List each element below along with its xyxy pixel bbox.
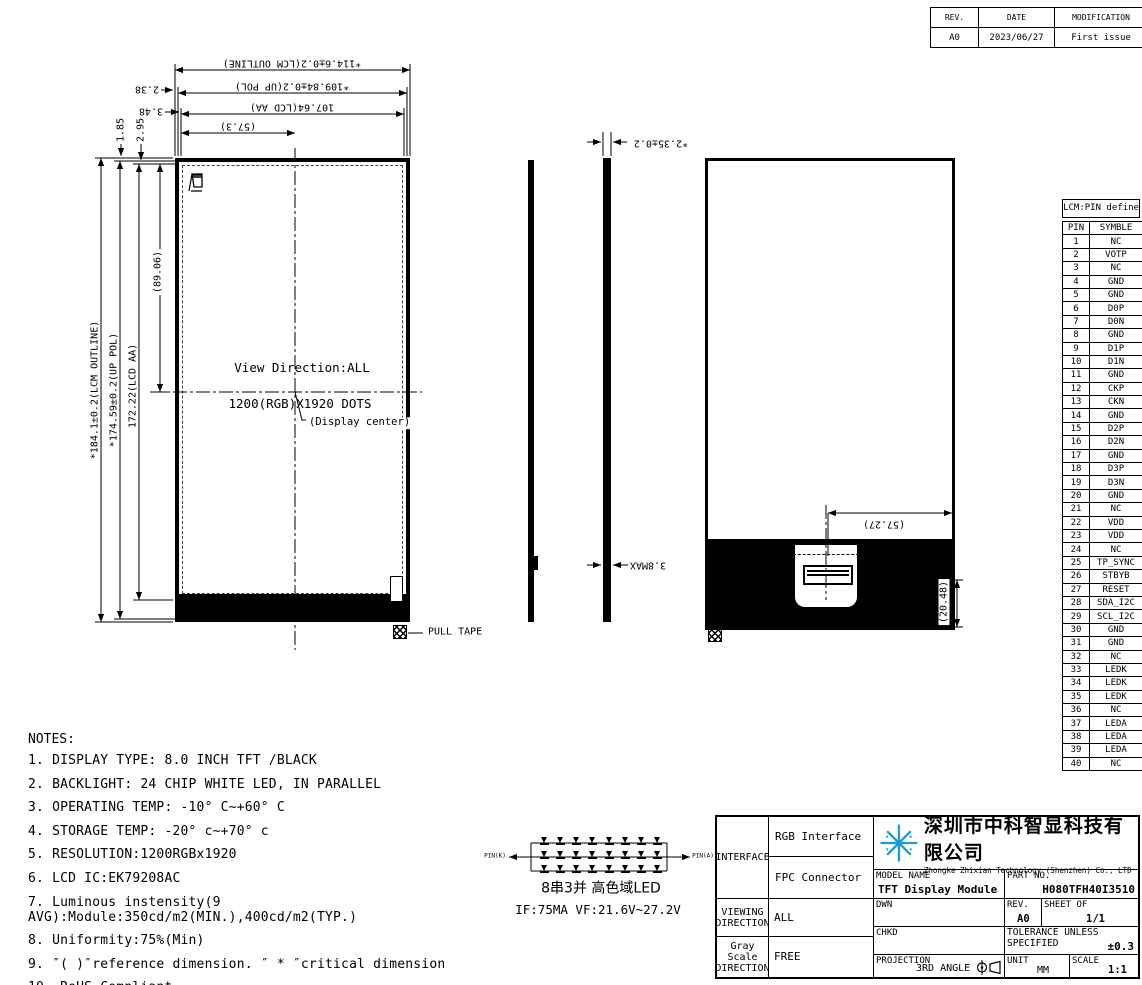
pin-cell: LEDK	[1090, 690, 1142, 703]
projection-value: 3RD ANGLE	[916, 963, 970, 974]
sheet-label: SHEET OF	[1044, 900, 1087, 910]
pin-cell: 17	[1063, 449, 1090, 462]
revision-header-cell: DATE	[979, 8, 1055, 28]
pin-row: 34LEDK	[1063, 677, 1142, 690]
company-cell: 深圳市中科智显科技有限公司 Zhongke Zhixian Technology…	[874, 817, 1138, 870]
pin-cell: GND	[1090, 449, 1142, 462]
led-symbol	[637, 865, 646, 876]
dim-thickness-max: 3.8MAX	[628, 560, 668, 571]
pin-row: 24NC	[1063, 543, 1142, 556]
led-symbol	[653, 851, 662, 862]
pin-cell: 23	[1063, 529, 1090, 542]
led-row	[540, 851, 662, 862]
dim-edge-3-48: 3.48	[137, 106, 165, 117]
led-symbol	[588, 837, 597, 848]
note-item: 9. ″( )″reference dimension. ″ * ″critic…	[28, 957, 548, 972]
pin-row: 8GND	[1063, 329, 1142, 342]
interface-rgb-value: RGB Interface	[775, 830, 861, 843]
pin-cell: GND	[1090, 369, 1142, 382]
pull-tape-hatch	[393, 625, 407, 639]
pin-cell: 3	[1063, 262, 1090, 275]
tolerance-value: ±0.3	[1108, 940, 1135, 953]
pin-cell: D3P	[1090, 463, 1142, 476]
pin-row: 2VOTP	[1063, 248, 1142, 261]
pin-row: 11GND	[1063, 369, 1142, 382]
part-no-label: PART NO.	[1007, 871, 1050, 881]
led-symbol	[621, 865, 630, 876]
led-symbol	[572, 851, 581, 862]
led-symbol	[540, 865, 549, 876]
pin-cell: 7	[1063, 315, 1090, 328]
pin-row: 17GND	[1063, 449, 1142, 462]
pin-cell: RESET	[1090, 583, 1142, 596]
led-symbol	[605, 865, 614, 876]
led-symbol	[540, 851, 549, 862]
revision-table-header: REV.DATEMODIFICATION	[931, 8, 1142, 28]
revision-cell: First issue	[1055, 28, 1142, 48]
dim-back-half-width: (57.27)	[861, 519, 907, 530]
led-pin-cathode-label: PIN(K)	[484, 854, 506, 861]
led-symbol	[637, 851, 646, 862]
led-symbol	[653, 865, 662, 876]
pin-cell: GND	[1090, 329, 1142, 342]
pin-cell: STBYB	[1090, 570, 1142, 583]
pin-table-title: LCM:PIN define	[1062, 199, 1140, 218]
pin-row: 22VDD	[1063, 516, 1142, 529]
dim-lcd-aa-height: 172.22(LCD AA)	[128, 342, 139, 430]
pin-row: 4GND	[1063, 275, 1142, 288]
pin-row: 13CKN	[1063, 396, 1142, 409]
dim-lcd-aa-width: 107.64(LCD AA)	[248, 102, 336, 113]
note-item: 6. LCD IC:EK79208AC	[28, 871, 548, 886]
pin-row: 37LEDA	[1063, 717, 1142, 730]
pin-row: 16D2N	[1063, 436, 1142, 449]
led-row	[540, 865, 662, 876]
pin-cell: GND	[1090, 637, 1142, 650]
scale-label: SCALE	[1072, 956, 1099, 966]
pin-row: 23VDD	[1063, 529, 1142, 542]
viewing-direction-label-cell: VIEWING DIRECTION	[717, 899, 769, 937]
pin-table-header: PINSYMBLE	[1063, 222, 1142, 235]
pin-row: 21NC	[1063, 503, 1142, 516]
pin-cell: 34	[1063, 677, 1090, 690]
pin-cell: LEDK	[1090, 663, 1142, 676]
dwn-cell: DWN	[874, 899, 1005, 927]
pin-cell: LEDA	[1090, 717, 1142, 730]
tolerance-label: TOLERANCE UNLESS SPECIFIED	[1007, 928, 1107, 950]
pin-cell: 37	[1063, 717, 1090, 730]
pin-cell: 27	[1063, 583, 1090, 596]
pin-define-table: LCM:PIN define PINSYMBLE 1NC2VOTP3NC4GND…	[1062, 199, 1140, 771]
pin-cell: NC	[1090, 503, 1142, 516]
pin-cell: NC	[1090, 704, 1142, 717]
pin-cell: 12	[1063, 382, 1090, 395]
part-no-value: H080TFH40I3510	[1042, 883, 1135, 896]
led-symbol	[572, 837, 581, 848]
revision-cell: A0	[931, 28, 979, 48]
pin-cell: VOTP	[1090, 248, 1142, 261]
pin-cell: 24	[1063, 543, 1090, 556]
pin-cell: 14	[1063, 409, 1090, 422]
pin-cell: 36	[1063, 704, 1090, 717]
pin-cell: 4	[1063, 275, 1090, 288]
revision-cell: 2023/06/27	[979, 28, 1055, 48]
led-pin-anode-label: PIN(A)	[692, 854, 714, 861]
pin-cell: 40	[1063, 757, 1090, 770]
pin-row: 3NC	[1063, 262, 1142, 275]
pin-cell: LEDA	[1090, 744, 1142, 757]
notes-title: NOTES:	[28, 732, 548, 747]
model-name-value: TFT Display Module	[878, 883, 997, 896]
pin-row: 18D3P	[1063, 463, 1142, 476]
pin-cell: D2N	[1090, 436, 1142, 449]
rev-value: A0	[1017, 913, 1030, 925]
pin-cell: 6	[1063, 302, 1090, 315]
pin-cell: VDD	[1090, 529, 1142, 542]
projection-cell: PROJECTION 3RD ANGLE	[874, 955, 1005, 977]
pin-cell: 33	[1063, 663, 1090, 676]
dwn-label: DWN	[876, 900, 892, 910]
view-direction-text: View Direction:ALL	[232, 361, 371, 375]
pin-cell: 38	[1063, 730, 1090, 743]
model-name-cell: MODEL NAME TFT Display Module	[874, 870, 1005, 899]
led-symbol	[540, 837, 549, 848]
pin-cell: 30	[1063, 623, 1090, 636]
pin-cell: GND	[1090, 288, 1142, 301]
pin-cell: D0P	[1090, 302, 1142, 315]
notes-list: 1. DISPLAY TYPE: 8.0 INCH TFT /BLACK2. B…	[28, 753, 548, 985]
pin-row: 32NC	[1063, 650, 1142, 663]
pin-cell: GND	[1090, 275, 1142, 288]
pin-cell: 32	[1063, 650, 1090, 663]
pin-cell: SCL_I2C	[1090, 610, 1142, 623]
pin-cell: 19	[1063, 476, 1090, 489]
note-item: 5. RESOLUTION:1200RGBx1920	[28, 847, 548, 862]
gray-scale-value-cell: FREE	[769, 937, 874, 977]
third-angle-symbol	[976, 960, 1002, 975]
dim-thickness: *2.35±0.2	[632, 138, 690, 149]
pin-row: 9D1P	[1063, 342, 1142, 355]
led-symbol	[653, 837, 662, 848]
pin-cell: 13	[1063, 396, 1090, 409]
note-item: 1. DISPLAY TYPE: 8.0 INCH TFT /BLACK	[28, 753, 548, 768]
engineering-drawing-sheet: *114.6±0.2(LCM OUTLINE) *109.84±0.2(UP P…	[0, 0, 1142, 985]
pin-cell: 15	[1063, 422, 1090, 435]
display-center-label: (Display center)	[307, 417, 412, 429]
pin-row: 14GND	[1063, 409, 1142, 422]
notes-section: NOTES: 1. DISPLAY TYPE: 8.0 INCH TFT /BL…	[28, 732, 548, 985]
led-symbol	[588, 851, 597, 862]
back-corner-hatch	[708, 629, 722, 642]
pin-cell: 39	[1063, 744, 1090, 757]
viewing-direction-value: ALL	[774, 911, 794, 924]
pin-row: 28SDA_I2C	[1063, 596, 1142, 609]
pin-row: 15D2P	[1063, 422, 1142, 435]
pin-cell: SDA_I2C	[1090, 596, 1142, 609]
model-name-label: MODEL NAME	[876, 871, 930, 881]
company-name-cn: 深圳市中科智显科技有限公司	[924, 811, 1138, 865]
pin-header-cell: PIN	[1063, 222, 1090, 235]
unit-value: MM	[1037, 965, 1049, 976]
pin-cell: NC	[1090, 235, 1142, 248]
note-item: 4. STORAGE TEMP: -20° c~+70° c	[28, 824, 548, 839]
led-symbol	[605, 851, 614, 862]
interface-fpc-cell: FPC Connector	[769, 857, 874, 899]
pin-cell: 1	[1063, 235, 1090, 248]
pin-cell: 28	[1063, 596, 1090, 609]
company-logo-icon	[880, 820, 918, 866]
pin-cell: 8	[1063, 329, 1090, 342]
revision-header-cell: REV.	[931, 8, 979, 28]
pin-cell: CKN	[1090, 396, 1142, 409]
pin-row: 7D0N	[1063, 315, 1142, 328]
dim-edge-1-85: 1.85	[116, 116, 127, 144]
led-caption-spec: IF:75MA VF:21.6V~27.2V	[513, 903, 683, 917]
revision-header-cell: MODIFICATION	[1055, 8, 1142, 28]
pin-cell: 35	[1063, 690, 1090, 703]
dim-up-pol-width: *109.84±0.2(UP POL)	[233, 81, 351, 92]
pin-cell: 5	[1063, 288, 1090, 301]
led-symbol	[556, 837, 565, 848]
led-symbol	[605, 837, 614, 848]
pin-row: 5GND	[1063, 288, 1142, 301]
led-symbol	[621, 837, 630, 848]
gray-scale-value: FREE	[774, 950, 801, 963]
resolution-text: 1200(RGB)X1920 DOTS	[227, 397, 374, 411]
pin-cell: 10	[1063, 355, 1090, 368]
pin-cell: GND	[1090, 489, 1142, 502]
pin-cell: 25	[1063, 556, 1090, 569]
led-symbol	[637, 837, 646, 848]
sheet-cell: SHEET OF 1/1	[1042, 899, 1138, 927]
led-row	[540, 837, 662, 848]
pin-row: 1NC	[1063, 235, 1142, 248]
interface-label-cell: INTERFACE	[717, 817, 769, 899]
pin-cell: NC	[1090, 262, 1142, 275]
pin-row: 20GND	[1063, 489, 1142, 502]
pin-header-cell: SYMBLE	[1090, 222, 1142, 235]
led-caption-cn: 8串3并 高色域LED	[539, 881, 663, 896]
dim-edge-2-95: 2.95	[136, 116, 147, 144]
pin-cell: 18	[1063, 463, 1090, 476]
pin-row: 33LEDK	[1063, 663, 1142, 676]
dim-half-height: (89.06)	[153, 249, 164, 295]
dim-back-fpc-height: (20.48)	[939, 579, 950, 625]
led-symbol	[572, 865, 581, 876]
pin-row: 38LEDA	[1063, 730, 1142, 743]
pin-cell: LEDA	[1090, 730, 1142, 743]
pin-row: 30GND	[1063, 623, 1142, 636]
pin-cell: 29	[1063, 610, 1090, 623]
pin-row: 12CKP	[1063, 382, 1142, 395]
led-symbol	[621, 851, 630, 862]
pin-cell: LEDK	[1090, 677, 1142, 690]
pin-row: 19D3N	[1063, 476, 1142, 489]
dim-half-width: (57.3)	[218, 121, 258, 132]
scale-value: 1:1	[1108, 964, 1127, 976]
pin-cell: NC	[1090, 650, 1142, 663]
pin-row: 40NC	[1063, 757, 1142, 770]
pin-row: 26STBYB	[1063, 570, 1142, 583]
pin-cell: D1N	[1090, 355, 1142, 368]
pin-cell: NC	[1090, 543, 1142, 556]
tolerance-cell: TOLERANCE UNLESS SPECIFIED ±0.3	[1005, 927, 1138, 955]
pin-cell: D3N	[1090, 476, 1142, 489]
pin-cell: 2	[1063, 248, 1090, 261]
pin-cell: 21	[1063, 503, 1090, 516]
pin-cell: D0N	[1090, 315, 1142, 328]
revision-row: A02023/06/27First issue	[931, 28, 1142, 48]
chkd-label: CHKD	[876, 928, 898, 938]
pin-cell: TP_SYNC	[1090, 556, 1142, 569]
pull-tape-label: PULL TAPE	[426, 627, 484, 638]
dim-up-pol-height: *174.59±0.2(UP POL)	[109, 331, 120, 449]
pin-row: 29SCL_I2C	[1063, 610, 1142, 623]
pin-cell: 16	[1063, 436, 1090, 449]
rev-cell: REV. A0	[1005, 899, 1042, 927]
part-no-cell: PART NO. H080TFH40I3510	[1005, 870, 1138, 899]
pin-row: 6D0P	[1063, 302, 1142, 315]
scale-cell: SCALE 1:1	[1070, 955, 1138, 977]
led-symbol	[588, 865, 597, 876]
pin-cell: 20	[1063, 489, 1090, 502]
pin-cell: 22	[1063, 516, 1090, 529]
pin-cell: D2P	[1090, 422, 1142, 435]
title-block: INTERFACE RGB Interface FPC Connector VI…	[715, 815, 1140, 979]
rev-label: REV.	[1007, 900, 1029, 910]
pin-row: 39LEDA	[1063, 744, 1142, 757]
note-item: 7. Luminous instensity(9 AVG):Module:350…	[28, 895, 548, 925]
pin-cell: 11	[1063, 369, 1090, 382]
pin-cell: NC	[1090, 757, 1142, 770]
pin-row: 36NC	[1063, 704, 1142, 717]
sheet-value: 1/1	[1086, 913, 1105, 925]
pin-row: 27RESET	[1063, 583, 1142, 596]
pin-row: 25TP_SYNC	[1063, 556, 1142, 569]
note-item: 3. OPERATING TEMP: -10° C~+60° C	[28, 800, 548, 815]
interface-fpc-value: FPC Connector	[775, 871, 861, 884]
dim-lcm-outline-height: *184.1±0.2(LCM OUTLINE)	[90, 319, 101, 461]
pin-row: 31GND	[1063, 637, 1142, 650]
pin-row: 35LEDK	[1063, 690, 1142, 703]
interface-rgb-cell: RGB Interface	[769, 817, 874, 857]
unit-label: UNIT	[1007, 956, 1029, 966]
pin-cell: D1P	[1090, 342, 1142, 355]
chkd-cell: CHKD	[874, 927, 1005, 955]
pin-cell: 9	[1063, 342, 1090, 355]
pin-cell: 31	[1063, 637, 1090, 650]
led-symbol	[556, 865, 565, 876]
led-symbol	[556, 851, 565, 862]
revision-table: REV.DATEMODIFICATION A02023/06/27First i…	[930, 7, 1138, 48]
dim-edge-2-38: 2.38	[133, 84, 161, 95]
viewing-direction-value-cell: ALL	[769, 899, 874, 937]
dim-lcm-outline-width: *114.6±0.2(LCM OUTLINE)	[221, 58, 363, 69]
gray-scale-label-cell: Gray Scale DIRECTION	[717, 937, 769, 977]
pin-cell: GND	[1090, 409, 1142, 422]
pin-cell: 26	[1063, 570, 1090, 583]
note-item: 10. RoHS Compliant	[28, 980, 548, 985]
pin-cell: GND	[1090, 623, 1142, 636]
pin-cell: VDD	[1090, 516, 1142, 529]
unit-cell: UNIT MM	[1005, 955, 1070, 977]
pin-cell: CKP	[1090, 382, 1142, 395]
pin-row: 10D1N	[1063, 355, 1142, 368]
note-item: 2. BACKLIGHT: 24 CHIP WHITE LED, IN PARA…	[28, 777, 548, 792]
note-item: 8. Uniformity:75%(Min)	[28, 933, 548, 948]
